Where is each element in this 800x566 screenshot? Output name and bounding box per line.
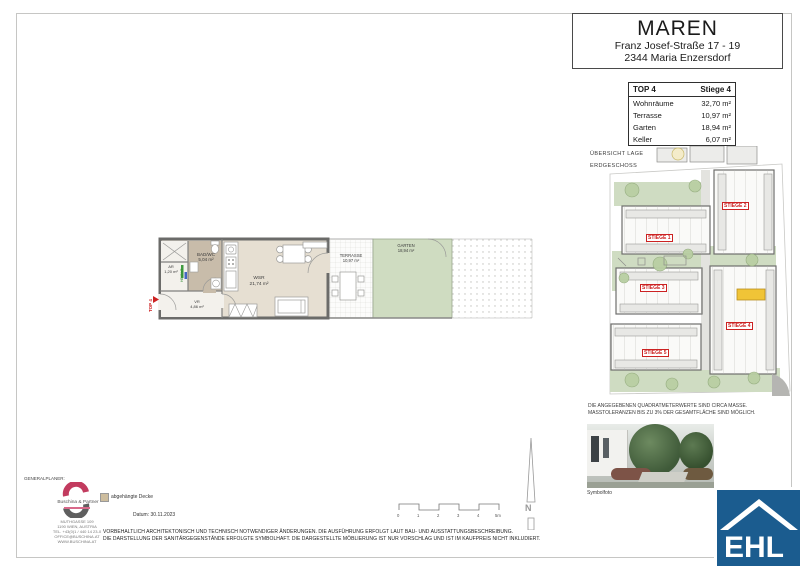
- row-label: Wohnräume: [633, 99, 674, 108]
- room-label-vr: VR 4,86 m²: [185, 300, 209, 309]
- floorplan-brochure-page: { "header": { "title": "MAREN", "address…: [0, 0, 800, 566]
- photo-caption: Symbolfoto: [587, 490, 612, 497]
- staircase-number: Stiege 4: [700, 85, 731, 94]
- site-label-stiege5: STIEGE 5: [642, 349, 669, 357]
- room-label-wsr: WSR 21,74 m²: [241, 276, 277, 287]
- table-row: Keller 6,07 m²: [629, 133, 735, 145]
- scale-tick-1: 1: [417, 513, 419, 518]
- sqm-note-line2: MASSTOLERANZEN BIS ZU 3% DER GESAMTFLÄCH…: [588, 410, 755, 417]
- generalplaner-label: GENERALPLANER:: [24, 476, 65, 481]
- scale-tick-5: 5m: [495, 513, 501, 518]
- room-area: 21,74 m²: [241, 282, 277, 288]
- project-header-box: MAREN Franz Josef-Straße 17 - 19 2344 Ma…: [572, 13, 783, 69]
- room-area: 1,20 m²: [162, 270, 180, 275]
- row-label: Garten: [633, 123, 656, 132]
- scale-tick-3: 3: [457, 513, 459, 518]
- photo-window: [603, 438, 609, 458]
- scale-bar: [398, 501, 508, 513]
- room-area: 18,94 m²: [389, 249, 423, 254]
- room-area: 5,04 m²: [190, 257, 222, 262]
- floor-plan: BAD/WC 5,04 m² AR 1,20 m² VR 4,86 m² WSR…: [145, 232, 540, 327]
- room-area: 4,86 m²: [185, 305, 209, 310]
- photo-shrub: [683, 468, 713, 480]
- room-area: 10,97 m²: [333, 259, 369, 264]
- room-label-terrasse: TERRASSE 10,97 m²: [333, 254, 369, 264]
- table-row: Garten 18,94 m²: [629, 121, 735, 133]
- date-label: Datum: 30.11.2023: [133, 512, 175, 518]
- legend-label: abgehängte Decke: [111, 494, 153, 500]
- site-label-stiege3: STIEGE 3: [640, 284, 667, 292]
- project-title: MAREN: [637, 18, 718, 40]
- site-plan: STIEGE 1 STIEGE 2 STIEGE 3 STIEGE 4 STIE…: [602, 146, 792, 400]
- photo-tree: [679, 432, 713, 470]
- ehl-logo: EHL: [714, 487, 800, 566]
- highlighted-unit-top4: [737, 289, 765, 300]
- photo-window: [591, 436, 599, 462]
- symbol-photo: [587, 424, 714, 488]
- unit-tag-top4: TOP 4: [148, 299, 153, 312]
- legend-swatch: [100, 493, 109, 502]
- north-letter: N: [525, 503, 532, 513]
- disclaimer-line1: VORBEHALTLICH ARCHITEKTONISCH UND TECHNI…: [103, 529, 513, 536]
- planner-address-line: WWW.BUSCHINA.AT: [44, 539, 110, 544]
- row-label: Keller: [633, 135, 652, 144]
- unit-number: TOP 4: [633, 85, 656, 94]
- site-plan-drawing: [602, 146, 792, 400]
- row-value: 18,94 m²: [701, 123, 731, 132]
- table-row: Wohnräume 32,70 m²: [629, 97, 735, 109]
- ehl-roof-icon: [717, 490, 800, 534]
- site-label-stiege2: STIEGE 2: [722, 202, 749, 210]
- site-label-stiege4: STIEGE 4: [726, 322, 753, 330]
- heiz-label: HEIZ/VT: [180, 269, 184, 282]
- scale-tick-0: 0: [397, 513, 399, 518]
- ehl-logo-background: EHL: [717, 490, 800, 566]
- sqm-note-line1: DIE ANGEGEBENEN QUADRATMETERWERTE SIND C…: [588, 403, 747, 410]
- row-value: 10,97 m²: [701, 111, 731, 120]
- disclaimer-line2: DIE DARSTELLUNG DER SANITÄRGEGENSTÄNDE E…: [103, 536, 540, 543]
- row-value: 6,07 m²: [706, 135, 731, 144]
- site-label-stiege1: STIEGE 1: [646, 234, 673, 242]
- unit-area-table: TOP 4 Stiege 4 Wohnräume 32,70 m² Terras…: [628, 82, 736, 146]
- ehl-logo-text: EHL: [724, 533, 784, 563]
- project-address-line1: Franz Josef-Straße 17 - 19: [615, 40, 740, 52]
- north-arrow-icon: [520, 438, 542, 530]
- unit-area-table-header: TOP 4 Stiege 4: [629, 83, 735, 97]
- row-label: Terrasse: [633, 111, 662, 120]
- floor-plan-drawing: [145, 232, 540, 327]
- room-label-ar: AR 1,20 m²: [162, 265, 180, 274]
- room-label-garten: GARTEN 18,94 m²: [389, 244, 423, 254]
- scale-tick-4: 4: [477, 513, 479, 518]
- project-address-line2: 2344 Maria Enzersdorf: [624, 52, 730, 64]
- room-label-badwc: BAD/WC 5,04 m²: [190, 252, 222, 262]
- scale-tick-2: 2: [437, 513, 439, 518]
- buschina-tagline-bar: [64, 507, 90, 509]
- photo-ground: [587, 482, 714, 488]
- table-row: Terrasse 10,97 m²: [629, 109, 735, 121]
- row-value: 32,70 m²: [701, 99, 731, 108]
